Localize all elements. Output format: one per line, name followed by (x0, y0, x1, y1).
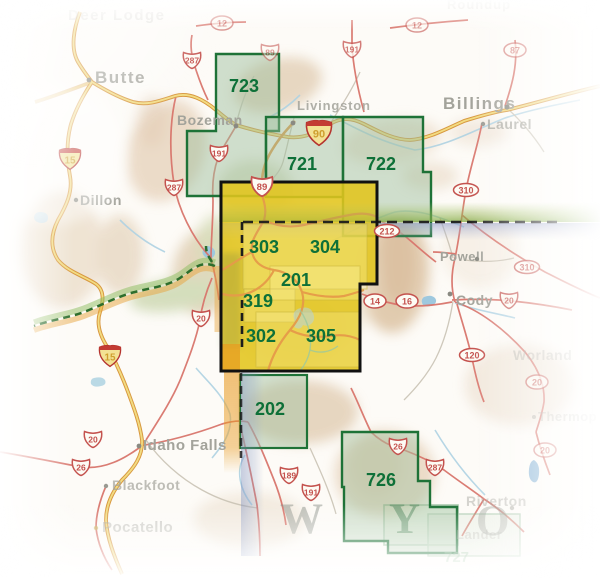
svg-text:15: 15 (104, 352, 116, 363)
svg-text:191: 191 (345, 45, 359, 55)
svg-text:16: 16 (402, 297, 412, 307)
svg-text:201: 201 (281, 270, 311, 290)
svg-text:26: 26 (393, 442, 403, 452)
svg-text:90: 90 (313, 129, 325, 141)
svg-text:723: 723 (229, 76, 259, 96)
svg-text:202: 202 (255, 399, 285, 419)
svg-text:305: 305 (306, 326, 336, 346)
svg-text:89: 89 (265, 48, 275, 58)
svg-text:26: 26 (76, 463, 86, 473)
svg-text:319: 319 (243, 291, 273, 311)
svg-text:721: 721 (287, 154, 317, 174)
svg-text:212: 212 (379, 227, 394, 237)
svg-text:Idaho Falls: Idaho Falls (143, 437, 227, 454)
svg-text:189: 189 (282, 471, 296, 481)
svg-text:Blackfoot: Blackfoot (112, 477, 180, 493)
svg-text:287: 287 (167, 183, 181, 193)
svg-text:14: 14 (370, 297, 380, 307)
svg-text:20: 20 (196, 314, 206, 324)
svg-text:89: 89 (257, 182, 268, 193)
svg-text:722: 722 (366, 154, 396, 174)
svg-text:726: 726 (366, 470, 396, 490)
svg-text:287: 287 (428, 463, 442, 473)
svg-text:302: 302 (246, 326, 276, 346)
svg-text:303: 303 (249, 237, 279, 257)
svg-text:20: 20 (88, 435, 98, 445)
svg-text:Livingston: Livingston (297, 98, 371, 113)
svg-text:304: 304 (310, 237, 340, 257)
svg-text:191: 191 (304, 488, 318, 498)
